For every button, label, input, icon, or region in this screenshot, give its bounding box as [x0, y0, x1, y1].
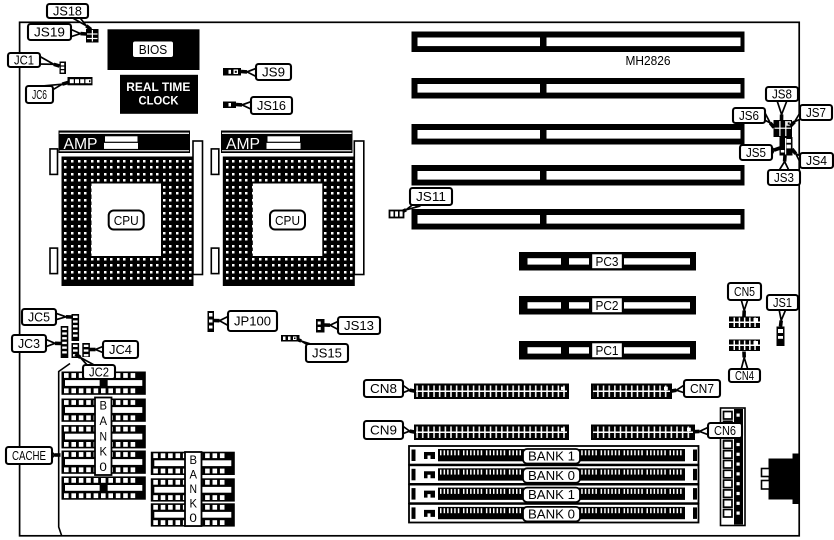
svg-text:N: N — [189, 484, 197, 496]
svg-text:PC1: PC1 — [596, 343, 619, 358]
svg-text:CN8: CN8 — [370, 381, 397, 396]
svg-text:A: A — [99, 416, 107, 428]
svg-text:A: A — [189, 470, 197, 482]
svg-text:B: B — [189, 455, 197, 467]
svg-text:0: 0 — [189, 513, 197, 525]
svg-text:JS18: JS18 — [53, 4, 82, 19]
svg-text:JS16: JS16 — [257, 98, 286, 113]
svg-text:JC1: JC1 — [14, 53, 34, 68]
svg-text:CN5: CN5 — [734, 284, 755, 299]
svg-text:N: N — [99, 431, 107, 443]
svg-text:BIOS: BIOS — [139, 42, 168, 57]
svg-text:JC4: JC4 — [109, 342, 132, 357]
svg-text:JC2: JC2 — [89, 365, 109, 380]
svg-text:CLOCK: CLOCK — [139, 95, 180, 107]
svg-text:JS9: JS9 — [262, 65, 285, 80]
svg-text:JC6: JC6 — [32, 87, 47, 102]
svg-text:CPU: CPU — [114, 213, 139, 228]
svg-text:BANK 0: BANK 0 — [528, 508, 575, 522]
svg-text:CPU: CPU — [275, 213, 300, 228]
svg-text:AMP: AMP — [226, 136, 260, 153]
svg-text:JS8: JS8 — [772, 87, 792, 102]
svg-text:BANK 1: BANK 1 — [528, 488, 575, 502]
svg-text:CN7: CN7 — [690, 381, 714, 396]
svg-text:CACHE: CACHE — [12, 448, 46, 463]
svg-text:JP100: JP100 — [234, 314, 271, 329]
svg-text:JS7: JS7 — [806, 105, 826, 120]
svg-text:0: 0 — [99, 462, 107, 474]
svg-text:CN4: CN4 — [735, 368, 754, 383]
svg-text:BANK 1: BANK 1 — [528, 450, 575, 464]
svg-text:K: K — [189, 499, 197, 511]
svg-text:PC3: PC3 — [596, 254, 619, 269]
svg-text:MH2826: MH2826 — [626, 54, 671, 68]
svg-text:JS13: JS13 — [344, 318, 374, 333]
svg-text:BANK 0: BANK 0 — [528, 469, 575, 483]
svg-text:JS3: JS3 — [774, 170, 794, 185]
svg-text:JS15: JS15 — [312, 346, 342, 361]
svg-text:JS4: JS4 — [806, 153, 827, 168]
svg-text:K: K — [99, 447, 107, 459]
svg-text:CN6: CN6 — [714, 423, 736, 438]
svg-text:REAL TIME: REAL TIME — [126, 82, 190, 94]
svg-text:AMP: AMP — [64, 136, 98, 153]
svg-text:JS6: JS6 — [739, 108, 759, 123]
svg-text:JC3: JC3 — [18, 336, 40, 351]
svg-text:B: B — [99, 401, 107, 413]
svg-text:PC2: PC2 — [596, 298, 619, 313]
svg-text:JS11: JS11 — [416, 189, 446, 204]
svg-text:JS5: JS5 — [746, 145, 766, 160]
svg-text:JS19: JS19 — [34, 25, 65, 40]
svg-text:JC5: JC5 — [28, 310, 50, 325]
svg-text:JS1: JS1 — [773, 295, 792, 310]
svg-text:CN9: CN9 — [370, 423, 397, 438]
